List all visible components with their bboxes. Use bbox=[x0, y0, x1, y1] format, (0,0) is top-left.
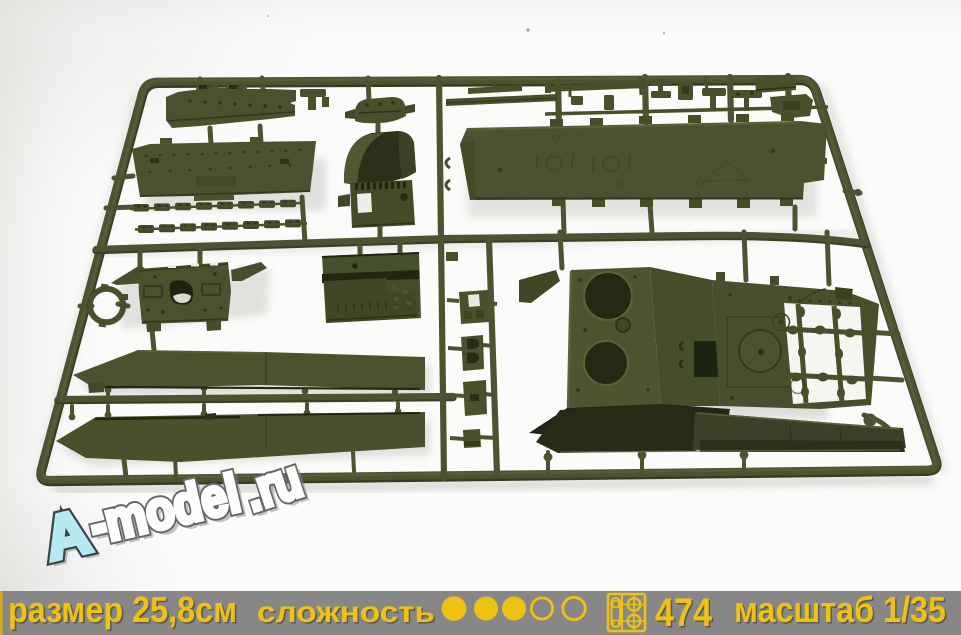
svg-text:сложность: сложность bbox=[257, 596, 435, 629]
svg-text:размер 25,8см: размер 25,8см bbox=[8, 589, 237, 630]
svg-text:масштаб 1/35: масштаб 1/35 bbox=[734, 589, 946, 630]
svg-text:474: 474 bbox=[655, 591, 713, 635]
